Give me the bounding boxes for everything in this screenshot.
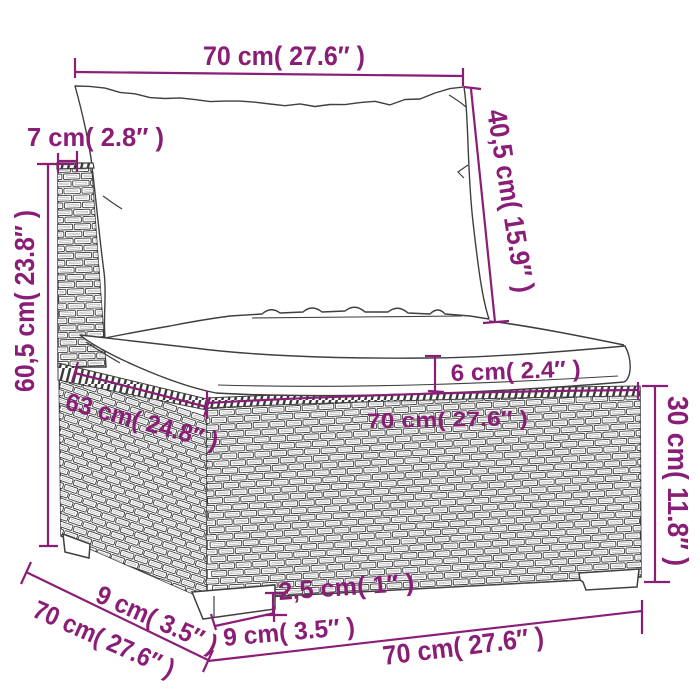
svg-text:70 cm( 27.6″ ): 70 cm( 27.6″ ) xyxy=(367,407,528,433)
svg-text:70 cm( 27.6″ ): 70 cm( 27.6″ ) xyxy=(203,41,365,71)
svg-text:6 cm( 2.4″ ): 6 cm( 2.4″ ) xyxy=(450,355,581,386)
svg-text:7 cm( 2.8″ ): 7 cm( 2.8″ ) xyxy=(27,122,164,152)
svg-text:30 cm( 11.8″ ): 30 cm( 11.8″ ) xyxy=(661,396,693,566)
svg-text:60,5 cm( 23.8″ ): 60,5 cm( 23.8″ ) xyxy=(9,210,40,392)
